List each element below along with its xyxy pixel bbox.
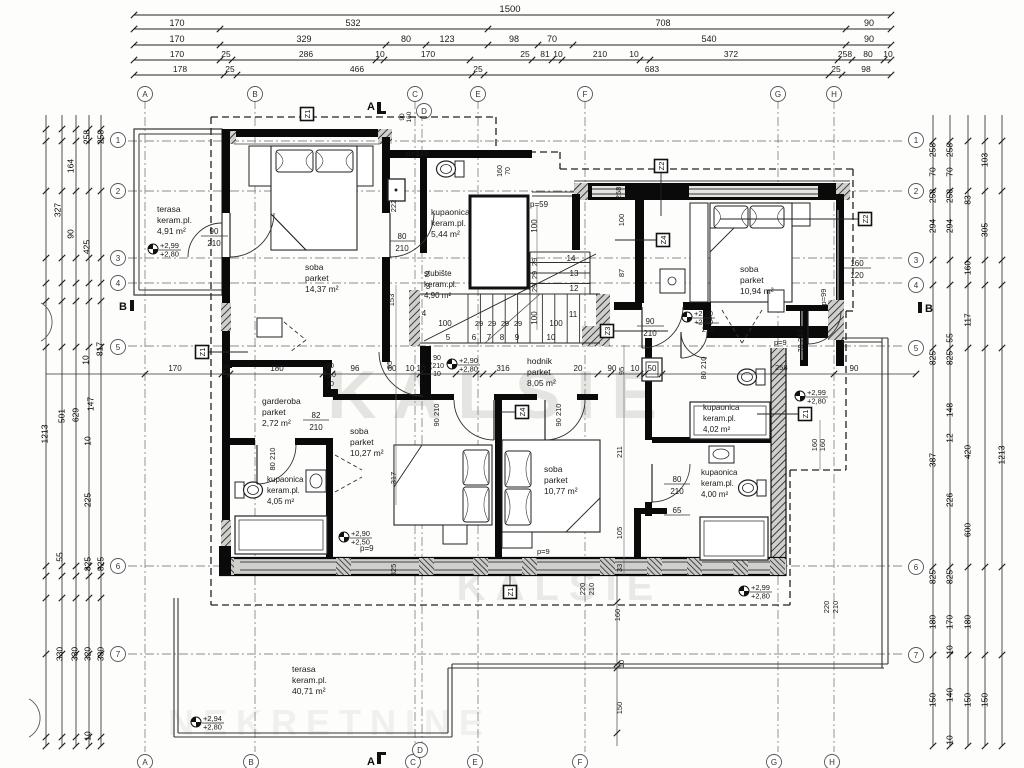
svg-text:100: 100 [530,219,539,233]
svg-text:210: 210 [831,601,840,614]
svg-text:825: 825 [96,557,106,571]
svg-text:25: 25 [225,64,235,74]
svg-text:Z1: Z1 [303,110,312,119]
svg-text:20: 20 [574,364,583,373]
svg-text:H: H [831,90,837,99]
svg-text:25: 25 [520,49,530,59]
svg-text:D: D [417,746,423,755]
svg-text:532: 532 [345,18,360,28]
svg-text:80: 80 [673,475,682,484]
svg-text:82: 82 [312,411,321,420]
svg-text:90: 90 [850,364,859,373]
svg-text:hodnik: hodnik [527,356,553,366]
svg-text:150: 150 [963,693,973,707]
svg-text:+2,80: +2,80 [751,592,770,601]
svg-text:soba: soba [305,262,324,272]
svg-text:8,05 m²: 8,05 m² [527,378,556,388]
svg-text:100: 100 [438,319,452,328]
svg-text:4,02 m²: 4,02 m² [703,425,730,434]
svg-text:90: 90 [864,34,874,44]
svg-text:210: 210 [395,244,409,253]
svg-text:90: 90 [66,229,76,239]
svg-text:387: 387 [928,453,938,467]
svg-text:A: A [142,90,148,99]
svg-text:222: 222 [389,200,398,213]
svg-text:10,27 m²: 10,27 m² [350,448,384,458]
svg-text:160: 160 [613,609,622,622]
svg-text:+2,80: +2,80 [459,365,478,374]
svg-text:6: 6 [472,333,477,342]
svg-text:keram.pl.: keram.pl. [267,486,300,495]
svg-text:5: 5 [446,333,451,342]
svg-text:B: B [119,301,127,313]
svg-text:5: 5 [116,343,121,352]
svg-text:+2,80: +2,80 [160,250,179,259]
svg-text:p=9: p=9 [360,544,374,553]
svg-text:keram.pl.: keram.pl. [701,479,734,488]
svg-text:soba: soba [350,426,369,436]
svg-text:10: 10 [83,436,93,446]
svg-text:5: 5 [914,344,919,353]
svg-text:825: 825 [928,351,938,365]
svg-text:10: 10 [883,49,893,59]
svg-text:14,37 m²: 14,37 m² [305,284,339,294]
svg-text:210: 210 [643,329,657,338]
svg-text:80: 80 [398,232,407,241]
svg-text:55: 55 [55,552,65,562]
svg-text:55: 55 [945,333,955,343]
svg-text:6: 6 [914,563,919,572]
svg-text:29: 29 [530,284,539,292]
svg-text:10: 10 [945,735,955,745]
svg-text:90: 90 [864,18,874,28]
svg-text:294: 294 [945,219,955,233]
svg-text:40,71 m²: 40,71 m² [292,686,326,696]
svg-text:96: 96 [351,364,360,373]
svg-text:79 210: 79 210 [796,330,805,353]
svg-text:G: G [775,90,781,99]
svg-text:50: 50 [648,364,657,373]
svg-text:4: 4 [422,309,427,318]
svg-text:1: 1 [914,136,919,145]
svg-text:terasa: terasa [157,204,181,214]
svg-text:A: A [367,101,375,113]
svg-text:80 210: 80 210 [268,448,277,471]
svg-text:11: 11 [569,310,578,319]
svg-text:286: 286 [299,49,313,59]
svg-text:10: 10 [326,381,334,388]
svg-text:90: 90 [210,227,219,236]
svg-text:p=99: p=99 [819,289,828,306]
svg-text:425: 425 [82,240,92,254]
svg-text:160: 160 [818,439,827,452]
svg-text:160: 160 [497,165,504,177]
svg-text:B: B [248,758,253,767]
svg-text:1500: 1500 [499,4,520,15]
svg-text:parket: parket [544,475,568,485]
svg-text:keram.pl.: keram.pl. [292,675,327,685]
svg-text:160: 160 [963,261,973,275]
svg-text:170: 170 [168,364,182,373]
svg-text:10: 10 [945,645,955,655]
svg-text:420: 420 [963,445,973,459]
svg-text:29: 29 [530,258,539,266]
svg-text:258: 258 [928,189,938,203]
svg-text:(210: (210 [430,363,444,370]
svg-text:10: 10 [417,364,426,373]
svg-text:330: 330 [96,647,106,661]
svg-text:160: 160 [850,259,864,268]
svg-text:147: 147 [86,397,96,411]
svg-text:parket: parket [740,275,764,285]
svg-text:90 210: 90 210 [554,404,563,427]
svg-text:180: 180 [928,615,938,629]
svg-text:629: 629 [71,408,81,422]
svg-text:F: F [578,758,583,767]
svg-text:Z2: Z2 [657,162,666,171]
svg-text:825: 825 [945,351,955,365]
svg-text:258: 258 [838,49,852,59]
svg-text:120: 120 [850,271,864,280]
svg-text:7: 7 [116,650,121,659]
svg-text:29: 29 [514,319,522,328]
svg-text:Z1: Z1 [198,348,207,357]
svg-text:123: 123 [439,34,454,44]
svg-text:210: 210 [324,372,336,379]
svg-text:10: 10 [433,371,441,378]
svg-text:B: B [252,90,257,99]
svg-text:330: 330 [70,647,80,661]
svg-text:1213: 1213 [997,445,1007,464]
svg-text:p=59: p=59 [530,200,549,209]
svg-text:stubište: stubište [424,269,452,278]
svg-text:5,44 m²: 5,44 m² [431,229,460,239]
svg-text:10: 10 [553,49,563,59]
svg-text:825: 825 [928,570,938,584]
svg-text:327: 327 [53,203,63,217]
svg-text:210: 210 [309,423,323,432]
svg-text:4: 4 [116,279,121,288]
svg-text:garderoba: garderoba [262,396,301,406]
svg-text:540: 540 [701,34,716,44]
svg-text:keram.pl.: keram.pl. [431,218,466,228]
svg-text:Z1: Z1 [801,410,810,419]
svg-text:258: 258 [775,363,788,372]
svg-text:10: 10 [375,49,385,59]
svg-text:kupaonica: kupaonica [267,475,304,484]
svg-text:317: 317 [389,472,398,485]
svg-text:33: 33 [615,564,624,572]
svg-text:10: 10 [406,364,415,373]
svg-text:305: 305 [980,223,990,237]
svg-text:1213: 1213 [40,424,50,443]
svg-text:+2,80: +2,80 [203,723,222,732]
svg-text:258: 258 [614,187,623,200]
svg-text:330: 330 [55,647,65,661]
svg-text:E: E [475,90,480,99]
svg-text:parket: parket [350,437,374,447]
svg-text:150: 150 [980,693,990,707]
svg-text:70: 70 [505,167,512,175]
svg-text:p=149: p=149 [406,149,429,158]
svg-text:keram.pl.: keram.pl. [424,280,457,289]
svg-text:Z1: Z1 [506,588,515,597]
svg-text:83: 83 [963,195,973,205]
svg-text:4,91 m²: 4,91 m² [157,226,186,236]
svg-text:6: 6 [116,562,121,571]
svg-text:parket: parket [262,407,286,417]
svg-text:210: 210 [702,325,715,334]
svg-text:180: 180 [963,615,973,629]
svg-text:29: 29 [488,319,496,328]
svg-text:10: 10 [81,355,91,365]
svg-text:70: 70 [928,167,938,177]
svg-text:Z2: Z2 [861,215,870,224]
svg-text:90 210: 90 210 [432,404,441,427]
svg-text:90: 90 [646,317,655,326]
svg-text:316: 316 [496,364,510,373]
svg-text:150: 150 [615,702,624,715]
svg-text:A: A [367,756,375,768]
svg-text:1: 1 [116,136,121,145]
svg-text:parket: parket [305,273,329,283]
svg-text:A: A [142,758,148,767]
svg-text:105: 105 [615,527,624,540]
svg-text:81: 81 [540,49,550,59]
svg-text:70: 70 [945,167,955,177]
svg-text:825: 825 [945,570,955,584]
svg-text:258: 258 [928,143,938,157]
svg-text:25: 25 [831,64,841,74]
svg-text:2: 2 [116,187,121,196]
svg-text:10,77 m²: 10,77 m² [544,486,578,496]
svg-text:226: 226 [945,493,955,507]
svg-text:soba: soba [544,464,563,474]
svg-text:65: 65 [673,506,682,515]
svg-text:372: 372 [724,49,738,59]
svg-text:153: 153 [387,294,396,307]
svg-text:3: 3 [116,254,121,263]
svg-text:12: 12 [570,284,579,293]
svg-text:Z3: Z3 [603,327,612,336]
svg-text:7: 7 [914,651,919,660]
svg-text:4,90 m²: 4,90 m² [424,291,451,300]
svg-text:100: 100 [530,311,539,325]
svg-text:117: 117 [963,313,973,327]
svg-text:Z4: Z4 [518,408,527,417]
svg-text:100: 100 [549,319,563,328]
svg-text:170: 170 [169,34,184,44]
svg-text:817: 817 [95,342,105,356]
svg-text:7: 7 [487,333,492,342]
svg-text:parket: parket [527,367,551,377]
svg-text:29: 29 [475,319,483,328]
svg-text:4,00 m²: 4,00 m² [701,490,728,499]
svg-text:12: 12 [945,433,955,443]
svg-text:170: 170 [170,49,184,59]
svg-text:terasa: terasa [292,664,316,674]
svg-text:600: 600 [963,523,973,537]
svg-text:225: 225 [83,493,93,507]
svg-text:210: 210 [207,239,221,248]
svg-text:F: F [583,90,588,99]
svg-text:90: 90 [326,363,334,370]
svg-text:25: 25 [222,364,231,373]
svg-text:29: 29 [501,319,509,328]
svg-text:178: 178 [173,64,187,74]
svg-text:150: 150 [928,693,938,707]
svg-text:180: 180 [270,364,284,373]
svg-text:95: 95 [385,361,394,369]
svg-text:B: B [925,303,933,315]
svg-text:29: 29 [530,271,539,279]
svg-text:210: 210 [587,583,596,596]
svg-text:220: 220 [822,601,831,614]
svg-text:220: 220 [578,583,587,596]
svg-text:103: 103 [980,153,990,167]
svg-text:10,94 m²: 10,94 m² [740,286,774,296]
svg-text:258: 258 [945,143,955,157]
svg-text:C: C [410,758,416,767]
svg-text:148: 148 [945,403,955,417]
svg-text:210: 210 [593,49,607,59]
svg-text:2,72 m²: 2,72 m² [262,418,291,428]
svg-text:10: 10 [631,364,640,373]
svg-text:25: 25 [221,49,231,59]
svg-text:825: 825 [83,557,93,571]
svg-text:708: 708 [655,18,670,28]
svg-text:3: 3 [914,256,919,265]
svg-text:211: 211 [615,446,624,458]
svg-text:170: 170 [169,18,184,28]
svg-text:320: 320 [83,647,93,661]
svg-text:80 210: 80 210 [699,357,708,380]
svg-text:80: 80 [863,49,873,59]
svg-text:70: 70 [547,34,557,44]
svg-text:keram.pl.: keram.pl. [157,215,192,225]
svg-text:683: 683 [645,64,659,74]
svg-text:p=9: p=9 [537,547,550,556]
svg-text:95: 95 [617,367,626,375]
svg-text:160: 160 [406,111,413,122]
svg-text:98: 98 [509,34,519,44]
svg-text:294: 294 [928,219,938,233]
svg-text:soba: soba [740,264,759,274]
svg-text:170: 170 [945,615,955,629]
svg-text:G: G [771,758,777,767]
svg-text:9: 9 [515,333,520,342]
svg-text:2: 2 [914,187,919,196]
svg-text:C: C [412,90,418,99]
svg-text:466: 466 [350,64,364,74]
svg-text:10: 10 [629,49,639,59]
svg-text:210: 210 [670,487,684,496]
svg-text:80: 80 [704,314,712,323]
svg-text:8: 8 [500,333,505,342]
svg-text:p=9: p=9 [774,338,787,347]
svg-text:H: H [829,758,835,767]
svg-text:10: 10 [547,333,556,342]
svg-text:14: 14 [567,254,576,263]
svg-text:13: 13 [570,269,579,278]
svg-text:164: 164 [66,159,76,173]
svg-text:258: 258 [96,130,106,144]
svg-text:100: 100 [617,214,626,227]
svg-text:4,05 m²: 4,05 m² [267,497,294,506]
svg-text:825: 825 [389,564,398,577]
svg-text:kupaonica: kupaonica [703,403,740,412]
svg-text:140: 140 [945,688,955,702]
svg-text:80: 80 [401,34,411,44]
svg-text:258: 258 [945,189,955,203]
svg-text:+2,80: +2,80 [807,397,826,406]
svg-text:keram.pl.: keram.pl. [703,414,736,423]
svg-text:258: 258 [82,130,92,144]
svg-text:E: E [472,758,477,767]
svg-text:90: 90 [399,113,406,121]
svg-text:90: 90 [608,364,617,373]
svg-text:329: 329 [296,34,311,44]
svg-text:87: 87 [617,269,626,277]
svg-text:98: 98 [861,64,871,74]
svg-text:D: D [421,107,427,116]
svg-text:501: 501 [57,409,67,423]
svg-text:kupaonica: kupaonica [431,207,470,217]
svg-text:170: 170 [421,49,435,59]
svg-text:kupaonica: kupaonica [701,468,738,477]
svg-text:4: 4 [914,281,919,290]
svg-text:25: 25 [473,64,483,74]
svg-text:Z4: Z4 [659,236,668,245]
svg-text:90: 90 [433,355,441,362]
